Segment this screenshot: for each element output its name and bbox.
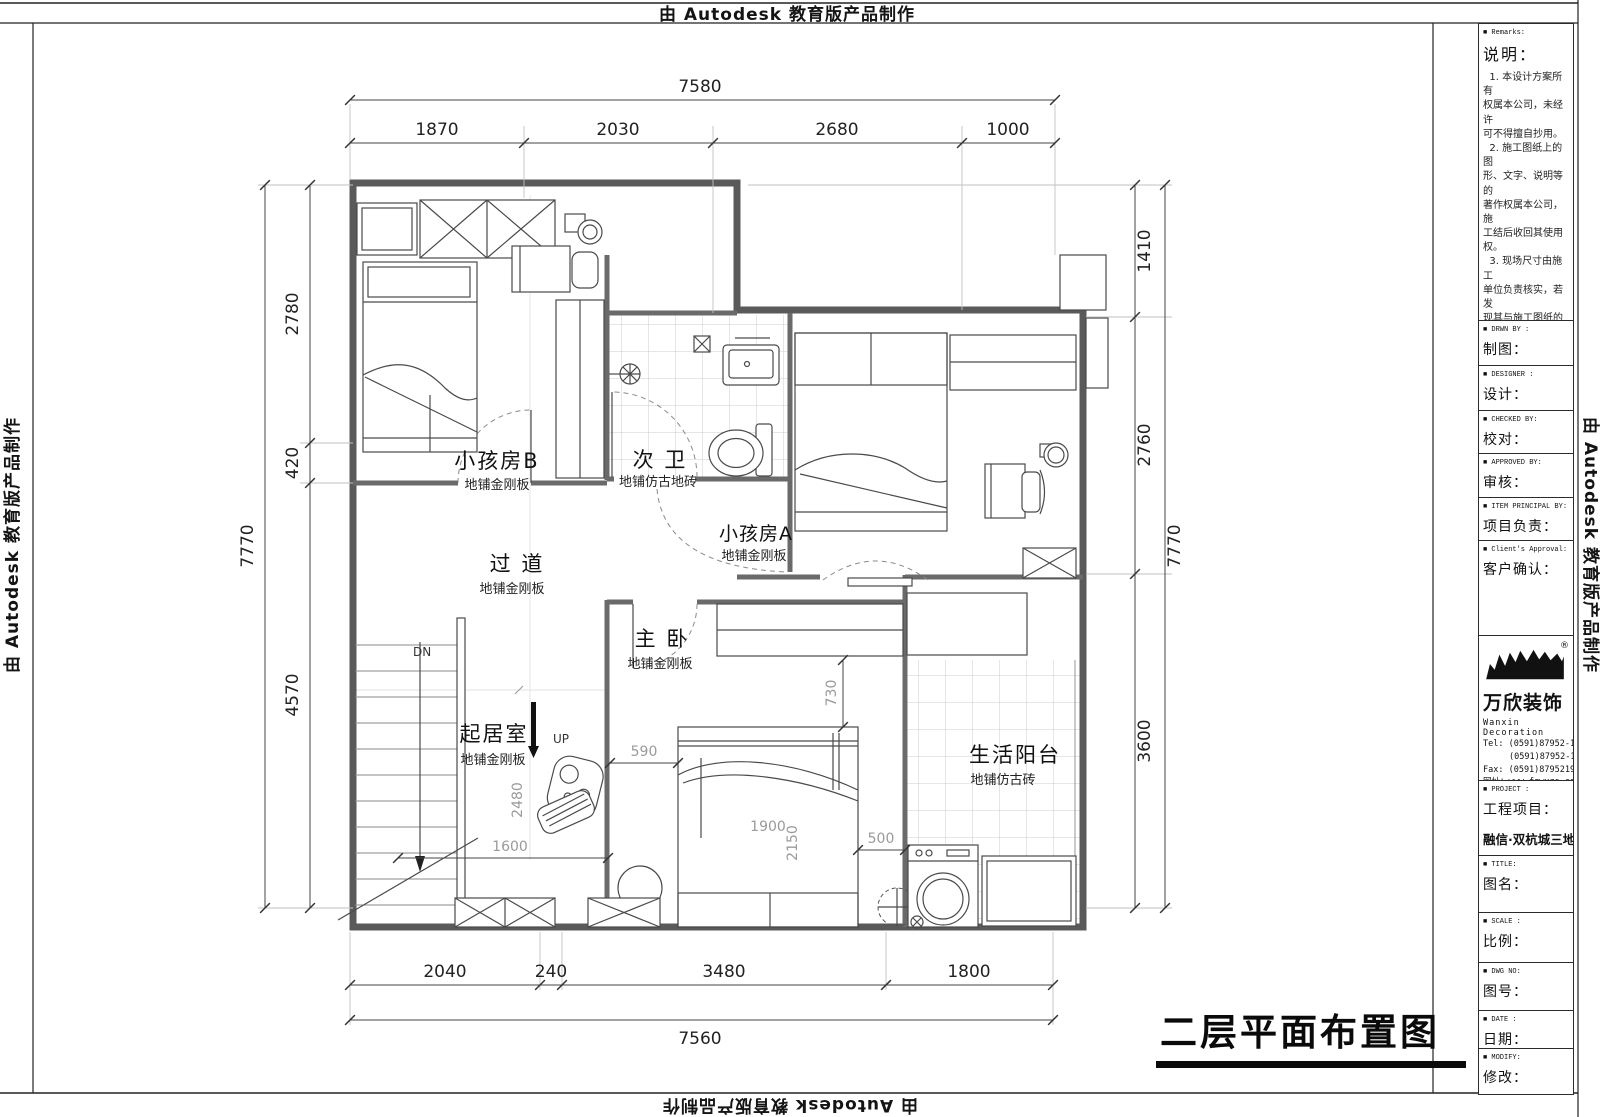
room-label-balcony: 生活阳台	[969, 743, 1061, 767]
field-label: 制图：	[1483, 339, 1569, 359]
top-banner: 由 Autodesk 教育版产品制作	[637, 5, 937, 25]
dim-right-total: 7770	[1165, 524, 1185, 567]
dim-left-1: 2780	[283, 292, 303, 335]
company-name: 万欣装饰	[1483, 688, 1569, 715]
laundry-sink-icon	[982, 856, 1076, 926]
company-logo: ®	[1483, 647, 1569, 687]
nightstand	[357, 203, 417, 255]
company-tel2: (0591)87952-177	[1483, 751, 1569, 764]
sink-icon	[723, 338, 779, 385]
field-tag: ■ Client's Approval:	[1483, 546, 1569, 554]
field-tag: ■ TITLE:	[1483, 861, 1569, 869]
field-tag: ■ DATE :	[1483, 1016, 1569, 1024]
room-label-bathroom: 次 卫	[633, 448, 688, 472]
dim-bottom-total: 7560	[678, 1029, 721, 1049]
field-tag: ■ DRWN BY :	[1483, 326, 1569, 334]
room-floor-living: 地铺金刚板	[460, 752, 525, 768]
field-label: 客户确认：	[1483, 559, 1569, 579]
room-floor-kids-b: 地铺金刚板	[464, 477, 529, 493]
room-living	[338, 618, 660, 927]
room-floor-corridor: 地铺金刚板	[479, 581, 544, 597]
field-tag: ■ DWG NO:	[1483, 968, 1569, 976]
dim-bottom-1: 2040	[423, 962, 466, 982]
basin-icon	[565, 214, 602, 244]
field-tag: ■ APPROVED BY:	[1483, 459, 1569, 467]
dim-int-590: 590	[631, 744, 658, 760]
stool-icon	[1040, 443, 1068, 467]
field-tag: ■ DESIGNER :	[1483, 371, 1569, 379]
company-tel1: Tel: (0591)87952-166	[1483, 738, 1569, 751]
project-label: 工程项目：	[1483, 799, 1569, 819]
dim-bottom-4: 1800	[947, 962, 990, 982]
project-tag: ■ PROJECT :	[1483, 786, 1569, 794]
remarks-section: ■ Remarks: 说明： 1. 本设计方案所有 权属本公司，未经许 可不得擅…	[1479, 24, 1573, 321]
field-dwg-no: ■ DWG NO: 图号：	[1479, 963, 1573, 1011]
dim-top-4: 1000	[986, 120, 1029, 140]
room-floor-master: 地铺金刚板	[627, 656, 692, 672]
room-label-living: 起居室	[460, 722, 529, 746]
dim-bottom-3: 3480	[702, 962, 745, 982]
dim-int-500: 500	[868, 831, 895, 847]
floor-plan-svg: 小孩房B 地铺金刚板 次 卫 地铺仿古地砖 小孩房A 地铺金刚板 过 道 地铺金…	[0, 0, 1600, 1117]
dim-top-1: 1870	[415, 120, 458, 140]
dim-right-2: 2760	[1135, 423, 1155, 466]
dim-top-3: 2680	[815, 120, 858, 140]
drawing-title: 二层平面布置图	[1156, 1002, 1466, 1068]
left-banner: 由 Autodesk 教育版产品制作	[3, 395, 23, 695]
drawing-sheet: 小孩房B 地铺金刚板 次 卫 地铺仿古地砖 小孩房A 地铺金刚板 过 道 地铺金…	[0, 0, 1600, 1117]
room-balcony	[908, 845, 1076, 928]
stairs	[338, 618, 478, 920]
room-label-master: 主 卧	[635, 627, 690, 651]
project-section: ■ PROJECT : 工程项目： 融信·双杭城三地块	[1479, 781, 1573, 856]
room-label-corridor: 过 道	[490, 552, 545, 576]
project-value: 融信·双杭城三地块	[1483, 829, 1569, 848]
field-label: 设计：	[1483, 384, 1569, 404]
room-label-kids-b: 小孩房B	[454, 449, 539, 473]
dim-int-2150: 2150	[785, 825, 801, 861]
right-banner: 由 Autodesk 教育版产品制作	[1580, 395, 1600, 695]
room-floor-kids-a: 地铺金刚板	[721, 548, 786, 564]
washing-machine-icon	[908, 845, 978, 928]
company-section: ® 万欣装饰 Wanxin Decoration Tel: (0591)8795…	[1479, 636, 1573, 781]
bed-single-icon	[363, 262, 477, 452]
field-label: 日期：	[1483, 1029, 1569, 1049]
dim-left-total: 7770	[238, 524, 258, 567]
field-drawn-by: ■ DRWN BY : 制图：	[1479, 321, 1573, 366]
balcony-cabinet	[907, 593, 1027, 655]
dim-int-2480: 2480	[510, 782, 526, 818]
dim-bottom-2: 240	[535, 962, 567, 982]
remarks-label: 说明：	[1483, 41, 1569, 65]
bottom-banner: 由 Autodesk 教育版产品制作	[640, 1095, 940, 1115]
company-name-en: Wanxin Decoration	[1483, 718, 1569, 738]
dim-right-1: 1410	[1135, 229, 1155, 272]
field-tag: ■ MODIFY:	[1483, 1054, 1569, 1062]
brush-logo-icon	[1483, 647, 1567, 683]
dim-int-1600: 1600	[492, 839, 528, 855]
room-floor-bathroom: 地铺仿古地砖	[619, 475, 697, 490]
field-label: 项目负责：	[1483, 516, 1569, 536]
dim-right-3: 3600	[1135, 719, 1155, 762]
desk-chair-icon	[512, 246, 598, 292]
dim-int-730: 730	[824, 680, 840, 707]
remarks-tag: ■ Remarks:	[1483, 29, 1569, 37]
roof-box	[1060, 255, 1106, 310]
field-title: ■ TITLE: 图名：	[1479, 856, 1573, 913]
field-label: 审核：	[1483, 472, 1569, 492]
field-label: 修改：	[1483, 1067, 1569, 1087]
dim-top-2: 2030	[596, 120, 639, 140]
room-label-kids-a: 小孩房A	[719, 523, 793, 545]
field-checked-by: ■ CHECKED BY: 校对：	[1479, 411, 1573, 454]
field-tag: ■ SCALE :	[1483, 918, 1569, 926]
stairs-up-label: UP	[553, 732, 569, 746]
field-modify: ■ MODIFY: 修改：	[1479, 1049, 1573, 1094]
dim-top-total: 7580	[678, 77, 721, 97]
field-label: 图名：	[1483, 874, 1569, 894]
field-client-approval: ■ Client's Approval: 客户确认：	[1479, 541, 1573, 636]
field-tag: ■ CHECKED BY:	[1483, 416, 1569, 424]
field-label: 比例：	[1483, 931, 1569, 951]
field-item-principal: ■ ITEM PRINCIPAL BY: 项目负责：	[1479, 498, 1573, 541]
field-tag: ■ ITEM PRINCIPAL BY:	[1483, 503, 1569, 511]
company-fax: Fax: (0591)87952199	[1483, 764, 1569, 777]
field-label: 图号：	[1483, 981, 1569, 1001]
field-approved-by: ■ APPROVED BY: 审核：	[1479, 454, 1573, 498]
field-designer: ■ DESIGNER : 设计：	[1479, 366, 1573, 411]
field-label: 校对：	[1483, 429, 1569, 449]
ac-platform	[1086, 318, 1108, 388]
title-block: ■ Remarks: 说明： 1. 本设计方案所有 权属本公司，未经许 可不得擅…	[1478, 23, 1574, 1095]
field-date: ■ DATE : 日期：	[1479, 1011, 1573, 1049]
field-scale: ■ SCALE : 比例：	[1479, 913, 1573, 963]
dim-int-1900: 1900	[750, 819, 786, 835]
kids-a-door-sill	[848, 578, 912, 586]
dim-left-3: 4570	[283, 673, 303, 716]
registered-mark: ®	[1560, 641, 1569, 651]
bed-double-icon	[795, 333, 947, 531]
desk-chair-icon	[985, 464, 1045, 518]
remarks-body: 1. 本设计方案所有 权属本公司，未经许 可不得擅自抄用。 2. 施工图纸上的图…	[1483, 71, 1569, 321]
stairs-down-label: DN	[413, 645, 431, 659]
dim-left-2: 420	[283, 447, 303, 479]
room-floor-balcony: 地铺仿古砖	[970, 773, 1035, 788]
